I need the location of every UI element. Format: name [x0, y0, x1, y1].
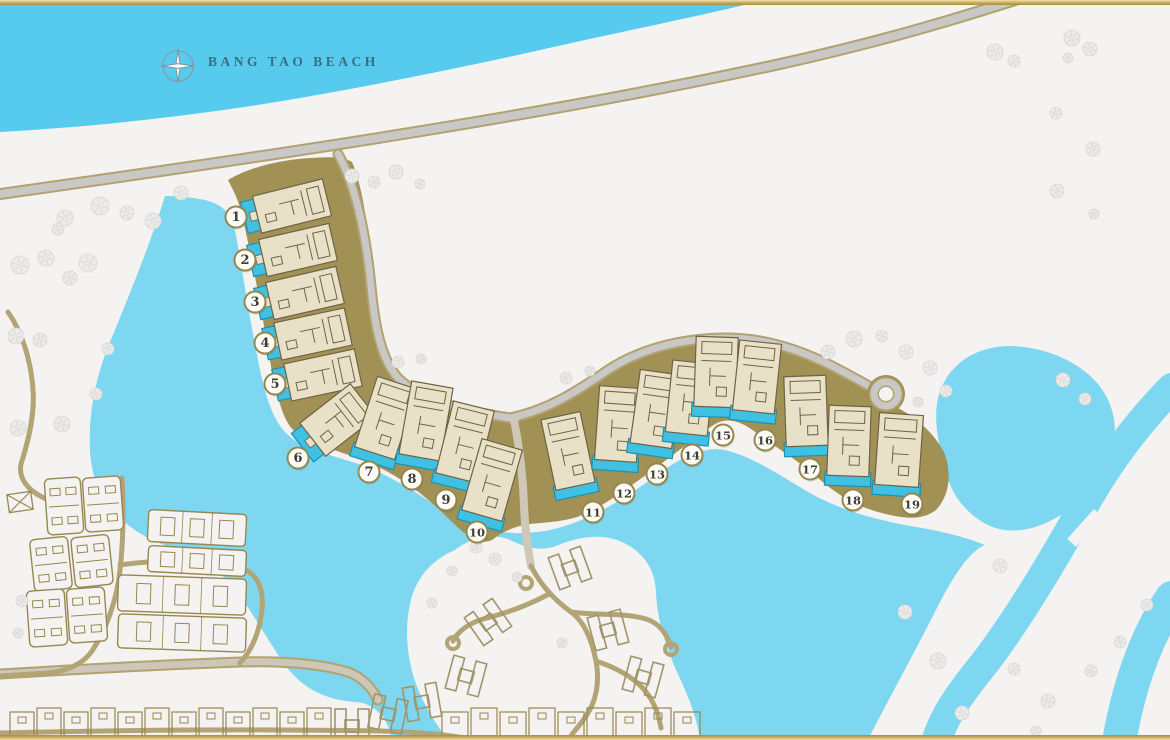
villa-number: 18: [845, 494, 861, 508]
tree-icon: [898, 605, 912, 619]
tree-icon: [120, 206, 134, 220]
villa-number: 17: [802, 463, 818, 477]
tree-icon: [1114, 636, 1126, 648]
tree-icon: [955, 706, 969, 720]
tree-icon: [1008, 55, 1020, 67]
tree-icon: [8, 328, 24, 344]
tree-icon: [63, 271, 77, 285]
condo-slab: [117, 614, 246, 652]
tree-icon: [392, 356, 404, 368]
tree-icon: [987, 44, 1003, 60]
condo-block: [66, 587, 108, 644]
tree-icon: [930, 653, 946, 669]
villa-building-17: [782, 375, 831, 457]
tree-icon: [846, 331, 862, 347]
villa-number: 9: [441, 493, 450, 508]
villa-number: 13: [649, 468, 665, 482]
resort-site-plan: 12345678910111213141516171819 BANG TAO B…: [0, 0, 1170, 740]
tree-icon: [512, 572, 522, 582]
villa-number: 7: [364, 465, 373, 480]
tree-icon: [923, 361, 937, 375]
tree-icon: [16, 595, 28, 607]
tree-icon: [91, 197, 109, 215]
villa-number: 15: [715, 429, 731, 443]
villa-building-19: [872, 412, 926, 497]
tree-icon: [11, 256, 29, 274]
frame-bottom-border: [0, 735, 1170, 740]
tree-icon: [1079, 393, 1091, 405]
villa-number: 19: [904, 498, 920, 512]
tree-icon: [52, 223, 64, 235]
tree-icon: [1083, 42, 1097, 56]
villa-number: 4: [260, 336, 269, 351]
condo-slab: [117, 575, 246, 615]
tree-icon: [899, 345, 913, 359]
tree-icon: [345, 169, 359, 183]
tree-icon: [1041, 694, 1055, 708]
tree-icon: [876, 330, 888, 342]
tree-icon: [38, 250, 54, 266]
tree-icon: [427, 598, 437, 608]
villa-number: 1: [231, 210, 240, 225]
tree-icon: [1085, 665, 1097, 677]
villa-number: 11: [585, 506, 601, 520]
tree-icon: [10, 420, 26, 436]
beach-label: BANG TAO BEACH: [208, 54, 379, 70]
condo-slab: [147, 509, 247, 546]
tree-icon: [389, 165, 403, 179]
tree-icon: [415, 179, 425, 189]
villa-number: 16: [757, 434, 773, 448]
tree-icon: [416, 354, 426, 364]
tree-icon: [1056, 373, 1070, 387]
villa-number: 10: [469, 526, 485, 540]
tree-icon: [993, 559, 1007, 573]
tree-icon: [33, 333, 47, 347]
tree-icon: [1141, 599, 1153, 611]
tree-icon: [174, 186, 188, 200]
tree-icon: [368, 176, 380, 188]
tree-icon: [913, 397, 923, 407]
tree-icon: [821, 345, 835, 359]
tree-icon: [557, 638, 567, 648]
tree-icon: [489, 553, 501, 565]
villa-number: 5: [270, 377, 279, 392]
compass-rose-icon: [157, 45, 199, 87]
tree-icon: [1063, 53, 1073, 63]
condo-block: [82, 476, 124, 533]
tree-icon: [585, 366, 595, 376]
tree-icon: [145, 213, 161, 229]
villa-number: 14: [684, 449, 700, 463]
map-canvas: 12345678910111213141516171819: [0, 0, 1170, 740]
villa-number: 12: [616, 487, 632, 501]
villa-building-18: [824, 405, 873, 487]
tree-icon: [1050, 184, 1064, 198]
tree-icon: [1008, 663, 1020, 675]
tree-icon: [79, 254, 97, 272]
villa-number: 8: [407, 472, 416, 487]
condo-block: [44, 477, 84, 535]
condo-slab: [147, 545, 246, 576]
tree-icon: [102, 343, 114, 355]
tree-icon: [1086, 142, 1100, 156]
tree-icon: [940, 385, 952, 397]
tree-icon: [54, 416, 70, 432]
tree-icon: [13, 628, 23, 638]
villa-number: 2: [240, 253, 249, 268]
villa-number: 6: [293, 451, 302, 466]
tree-icon: [447, 566, 457, 576]
tree-icon: [1089, 209, 1099, 219]
tree-icon: [1050, 107, 1062, 119]
frame-top-border: [0, 0, 1170, 5]
condo-block: [29, 536, 72, 592]
villa-number: 3: [250, 295, 259, 310]
tree-icon: [560, 372, 572, 384]
condo-block: [70, 534, 113, 588]
condo-block: [26, 589, 68, 648]
tree-icon: [90, 388, 102, 400]
tree-icon: [1064, 30, 1080, 46]
